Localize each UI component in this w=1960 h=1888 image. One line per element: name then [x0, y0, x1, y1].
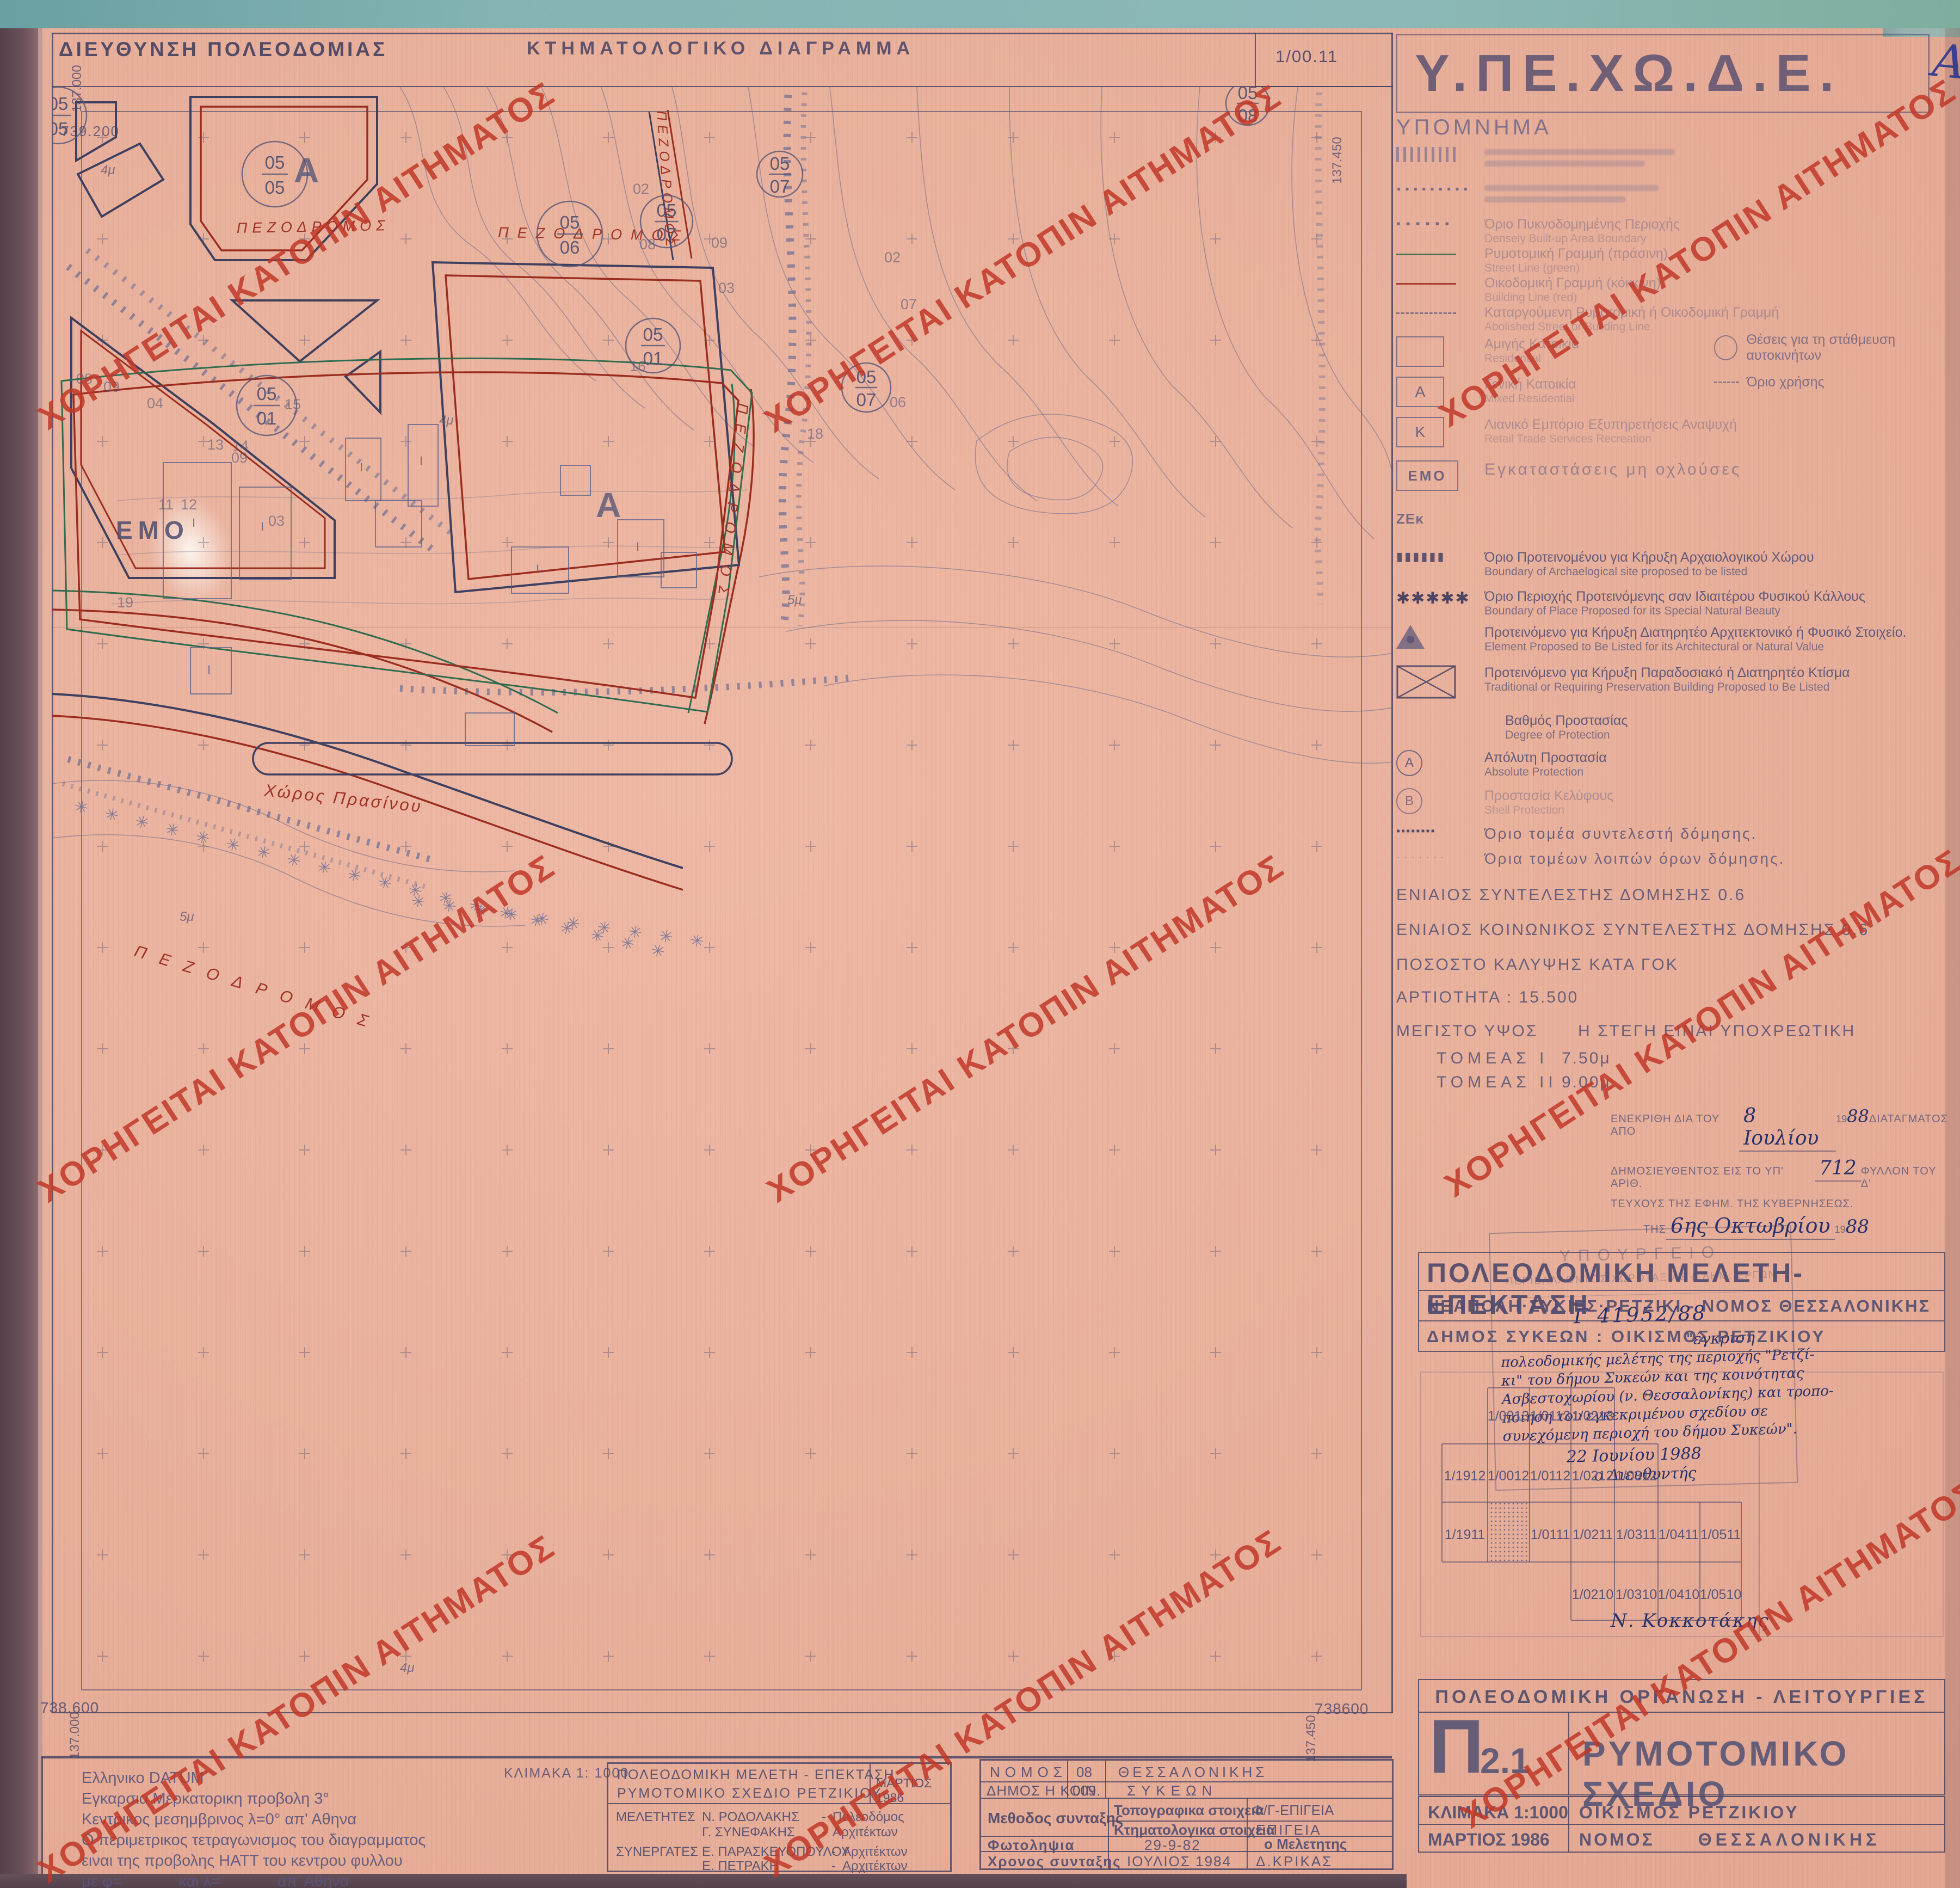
sector1-label: ΤΟΜΕΑΣ Ι: [1437, 1049, 1548, 1068]
svg-text:4μ: 4μ: [101, 163, 115, 177]
triangle-dot-symbol: [1396, 625, 1478, 649]
approval-year-hw: 88: [1847, 1106, 1869, 1127]
map-header-center-title: ΚΤΗΜΑΤΟΛΟΓΙΚΟ ΔΙΑΓΡΑΜΜΑ: [527, 38, 915, 59]
legend-item-protection-degree: Βαθμός ΠροστασίαςDegree of Protection: [1396, 713, 1946, 742]
svg-text:I: I: [536, 562, 539, 576]
meletitis-label: ο Μελετητης: [1264, 1836, 1347, 1853]
time-value: ΙΟΥΛΙΟΣ 1984: [1127, 1853, 1231, 1870]
svg-text:05: 05: [257, 384, 277, 404]
colon-1: :: [691, 1810, 695, 1825]
sheet-code-letter: Π: [1429, 1708, 1484, 1785]
dimos-value: ΣΥΚΕΩΝ: [1127, 1782, 1217, 1799]
stars-symbol: ✱✱✱✱✱: [1396, 589, 1478, 608]
approval-year2-print: 19: [1835, 1224, 1846, 1235]
empty-rect-symbol: [1396, 336, 1478, 367]
approval-l2-suffix: ΦΥΛΛΟΝ ΤΟΥ Δ': [1861, 1165, 1948, 1190]
current-sheet-cell: [1488, 1502, 1530, 1562]
svg-text:1/0410: 1/0410: [1658, 1587, 1699, 1602]
svg-text:1/0311: 1/0311: [1616, 1527, 1657, 1542]
svg-text:I: I: [420, 454, 423, 468]
study-name-1: Ν. ΡΟΔΟΛΑΚΗΣ: [702, 1810, 799, 1825]
legend-item-traditional-building: Προτεινόμενο για Κήρυξη Παραδοσιακό ή Δι…: [1396, 665, 1946, 702]
regulation-line-4: ΑΡΤΙΟΤΗΤΑ : 15.500: [1396, 988, 1579, 1007]
colon-2: :: [691, 1844, 695, 1860]
sheet-index: 1/0013 1/0113 1/0213 1/1912 1/0012 1/011…: [1420, 1372, 1945, 1638]
svg-text:11: 11: [158, 496, 174, 513]
svg-text:1/1912: 1/1912: [1444, 1468, 1486, 1484]
circle-a-symbol: Α: [1396, 750, 1478, 776]
svg-text:04: 04: [147, 395, 163, 411]
svg-text:13: 13: [207, 436, 224, 453]
study-credit-label-1: ΜΕΛΕΤΗΤΕΣ: [616, 1810, 695, 1825]
regulation-line-2: ΕΝΙΑΙΟΣ ΚΟΙΝΩΝΙΚΟΣ ΣΥΝΤΕΛΕΣΤΗΣ ΔΟΜΗΣΗΣ 0…: [1396, 921, 1869, 939]
datum-line-1: Ελληνικο DATUM: [82, 1768, 426, 1788]
svg-text:1/0510: 1/0510: [1700, 1587, 1741, 1602]
title-date: ΜΑΡΤΙΟΣ 1986: [1428, 1830, 1550, 1850]
svg-text:05: 05: [265, 177, 285, 198]
svg-text:05: 05: [52, 94, 68, 114]
ktima-label: Κτηματολογικα στοιχεια: [1114, 1822, 1275, 1838]
svg-text:01: 01: [257, 408, 277, 428]
regulation-line-1: ΕΝΙΑΙΟΣ ΣΥΝΤΕΛΕΣΤΗΣ ΔΟΜΗΣΗΣ 0.6: [1396, 886, 1746, 905]
approval-year2-hw: 88: [1846, 1216, 1869, 1238]
sector2-label: ΤΟΜΕΑΣ ΙΙ: [1437, 1073, 1557, 1092]
svg-text:5μ: 5μ: [787, 593, 802, 607]
scan-shade-right: [1945, 28, 1960, 1888]
scanner-background-top: [0, 0, 1960, 28]
svg-text:07: 07: [856, 390, 877, 410]
svg-text:1/0111: 1/0111: [1531, 1527, 1570, 1542]
green-line-symbol: [1396, 246, 1478, 255]
admin-table: ΝΟΜΟΣ 08 ΘΕΣΣΑΛΟΝΙΚΗΣ ΔΗΜΟΣ Η ΚΟΙΝ. 009 …: [979, 1759, 1394, 1870]
emo-zone-label: ΕΜΟ: [116, 516, 189, 544]
dash-4: -: [831, 1859, 836, 1874]
topo-value: Φ/Γ-ΕΠΙΓΕΙΑ: [1252, 1802, 1334, 1819]
circle-b-symbol: Β: [1396, 788, 1478, 814]
svg-text:1/0112: 1/0112: [1530, 1468, 1571, 1484]
svg-text:12: 12: [181, 496, 197, 513]
svg-text:09: 09: [711, 235, 728, 251]
svg-text:07: 07: [770, 176, 790, 196]
title-prefecture-value: ΘΕΣΣΑΛΟΝΙΚΗΣ: [1698, 1830, 1881, 1850]
meletitis-name: Δ.ΚΡΙΚΑΣ: [1256, 1853, 1333, 1870]
legend-item-zek: ΖΕκ: [1396, 511, 1946, 527]
dotted-symbol: ·········: [1396, 184, 1478, 195]
project-municipality: ΔΗΜΟΣ ΣΥΚΕΩΝ : ΟΙΚΙΣΜΟΣ ΡΕΤΖΙΚΙΟΥ: [1427, 1327, 1826, 1346]
legend-item-retail: Κ Λιανικό Εμπόριο Εξυπηρετήσεις ΑναψυχήR…: [1396, 417, 1946, 447]
legend-parking-row: Θέσεις για τη στάθμευση αυτοκινήτων: [1714, 332, 1960, 364]
topo-label: Τοπογραφικα στοιχεια: [1114, 1802, 1264, 1819]
rect-x-symbol: [1396, 665, 1478, 702]
svg-text:05: 05: [770, 153, 790, 174]
scanned-plan-sheet: ΔΙΕΥΘΥΝΣΗ ΠΟΛΕΟΔΟΜΙΑΣ ΚΤΗΜΑΤΟΛΟΓΙΚΟ ΔΙΑΓ…: [0, 0, 1960, 1888]
svg-text:5μ: 5μ: [180, 909, 194, 924]
zek-symbol: ΖΕκ: [1396, 511, 1478, 527]
legend-item-illegible-2: ·········: [1396, 184, 1946, 202]
svg-text:1/0411: 1/0411: [1659, 1527, 1699, 1542]
svg-text:1/0212: 1/0212: [1572, 1468, 1613, 1484]
svg-text:1/0310: 1/0310: [1616, 1587, 1657, 1602]
coord-bottom-right-east: 137.450: [1304, 1715, 1319, 1762]
svg-text:4μ: 4μ: [439, 413, 454, 428]
svg-text:05: 05: [643, 324, 663, 345]
dashed-line-symbol: [1396, 305, 1478, 314]
svg-text:1/0213: 1/0213: [1572, 1409, 1613, 1424]
svg-text:1/0012: 1/0012: [1488, 1468, 1529, 1484]
map-grid: [82, 112, 1361, 1690]
legend-item-building-ratio-boundary: ▪▪▪▪▪▪▪▪ Όριο τομέα συντελεστή δόμησης.: [1396, 825, 1946, 842]
svg-text:I: I: [261, 520, 264, 533]
svg-text:06: 06: [890, 394, 906, 410]
time-label: Χρονος συνταξης: [988, 1853, 1121, 1870]
scan-edge-left-highlight: [38, 28, 42, 1888]
legend-item-abolished-line: Καταργούμενη Ρυμοτομική ή Οικοδομική Γρα…: [1396, 305, 1946, 334]
legend-item-absolute-protection: Α Απόλυτη ΠροστασίαAbsolute Protection: [1396, 750, 1946, 779]
approval-l1-suffix: ΔΙΑΤΑΓΜΑΤΟΣ: [1869, 1113, 1948, 1126]
legend-item-other-terms-boundary: · · · · · · · Όρια τομέων λοιπών όρων δό…: [1396, 850, 1946, 868]
sheet-number: 1/00.11: [1275, 47, 1338, 66]
svg-text:07: 07: [657, 224, 677, 244]
svg-text:I: I: [360, 460, 363, 474]
study-role-4: Αρχιτέκτων: [842, 1859, 908, 1874]
title-settlement: ΟΙΚΙΣΜΟΣ ΡΕΤΖΙΚΙΟΥ: [1579, 1803, 1799, 1823]
map-header-left-title: ΔΙΕΥΘΥΝΣΗ ΠΟΛΕΟΔΟΜΙΑΣ: [59, 38, 387, 61]
svg-text:03: 03: [718, 280, 735, 296]
dot-faint-symbol: · · · · · · ·: [1396, 850, 1478, 864]
svg-text:1/1911: 1/1911: [1445, 1527, 1486, 1542]
study-role-3: Αρχιτέκτων: [842, 1844, 908, 1860]
photo-label: Φωτοληψια: [988, 1837, 1075, 1854]
datum-line-6: με φ= και λ= απ' Αθηνα: [82, 1871, 426, 1888]
dimos-code: 009: [1073, 1782, 1096, 1799]
square-dots-symbol: ▪ ▪ ▪ ▪ ▪ ▪: [1396, 217, 1478, 231]
svg-text:1/0013: 1/0013: [1488, 1409, 1529, 1424]
approval-date-hw: 8 Ιουλίου: [1739, 1105, 1836, 1152]
svg-text:I: I: [207, 663, 211, 677]
hatch-bars-symbol: [1396, 147, 1478, 162]
project-block: ΠΟΛΕΟΔΟΜΙΚΗ ΜΕΛΕΤΗ-ΕΠΕΚΤΑΣΗ ΝΕΑΠΟΛΗ·ΣΥΚΙ…: [1418, 1252, 1945, 1352]
legend-use-boundary-row: Όριο χρήσης: [1714, 374, 1825, 390]
max-height-label: ΜΕΓΙΣΤΟ ΥΨΟΣ: [1396, 1022, 1538, 1041]
map-frame-top: [52, 33, 1393, 34]
legend-use-boundary-label: Όριο χρήσης: [1747, 374, 1825, 390]
project-subtitle: ΝΕΑΠΟΛΗ·ΣΥΚΙΕΣ·ΡΕΤΖΙΚΙ - ΝΟΜΟΣ ΘΕΣΣΑΛΟΝΙ…: [1427, 1296, 1931, 1316]
legend-item-listed-element: Προτεινόμενο για Κήρυξη Διατηρητέο Αρχιτ…: [1396, 625, 1946, 654]
svg-text:03: 03: [268, 513, 285, 529]
legend-item-archaeological: ▮▮▮▮▮▮ Όριο Προτεινομένου για Κήρυξη Αρχ…: [1396, 550, 1946, 579]
method-label: Μεθοδος συνταξης: [988, 1810, 1123, 1827]
approval-number-hw: 712: [1815, 1157, 1861, 1182]
photo-value: 29-9-82: [1144, 1837, 1201, 1854]
approval-l1-label: ΕΝΕΚΡΙΘΗ ΔΙΑ ΤΟΥ ΑΠΟ: [1611, 1113, 1739, 1138]
svg-text:1/0211: 1/0211: [1573, 1527, 1613, 1542]
svg-text:05: 05: [52, 119, 68, 139]
nomos-code: 08: [1076, 1764, 1092, 1781]
svg-text:14: 14: [232, 438, 249, 454]
title-prefecture-label: ΝΟΜΟΣ: [1579, 1830, 1655, 1850]
zone-a-label-2: Α: [596, 485, 621, 525]
svg-text:I: I: [636, 540, 639, 554]
svg-text:06: 06: [560, 237, 580, 257]
nomos-value: ΘΕΣΣΑΛΟΝΙΚΗΣ: [1118, 1764, 1267, 1781]
legend-parking-label: Θέσεις για τη στάθμευση αυτοκινήτων: [1746, 332, 1960, 364]
datum-line-5: ειναι της προβολης ΗΑΤΤ του κεντρου φυλλ…: [82, 1850, 426, 1871]
svg-text:I: I: [192, 516, 195, 530]
svg-text:1/0312: 1/0312: [1616, 1468, 1657, 1484]
legend-item-natural-beauty: ✱✱✱✱✱ Όριο Περιοχής Προτεινόμενης σαν Ιδ…: [1396, 589, 1946, 618]
study-credit-label-2: ΣΥΝΕΡΓΑΤΕΣ: [616, 1844, 698, 1860]
svg-text:1/0511: 1/0511: [1700, 1527, 1741, 1542]
dot-row-symbol: ▪▪▪▪▪▪▪▪: [1396, 825, 1478, 838]
agency-title: Υ.ΠΕ.ΧΩ.Δ.Ε.: [1415, 44, 1842, 103]
svg-text:05: 05: [265, 152, 285, 173]
study-title-1: ΠΟΛΕΟΔΟΜΙΚΗ ΜΕΛΕΤΗ - ΕΠΕΚΤΑΣΗ: [617, 1767, 895, 1783]
legend-item-dense-area: ▪ ▪ ▪ ▪ ▪ ▪ Όριο Πυκνοδομημένης Περιοχής…: [1396, 217, 1946, 245]
approval-year-print: 19: [1836, 1114, 1847, 1125]
bar-dots-symbol: ▮▮▮▮▮▮: [1396, 550, 1478, 564]
svg-text:1/0113: 1/0113: [1530, 1409, 1571, 1424]
svg-text:02: 02: [884, 249, 901, 266]
svg-text:05: 05: [657, 200, 677, 220]
scan-edge-left: [0, 28, 38, 1888]
approval-block: ΕΝΕΚΡΙΘΗ ΔΙΑ ΤΟΥ ΑΠΟ 8 Ιουλίου 19 88 ΔΙΑ…: [1611, 1105, 1948, 1240]
red-line-symbol: [1396, 275, 1478, 285]
svg-text:05: 05: [560, 212, 580, 232]
svg-text:18: 18: [807, 426, 823, 442]
svg-text:15: 15: [285, 396, 301, 413]
rect-emo-symbol: ΕΜΟ: [1396, 460, 1478, 491]
legend-title: ΥΠΟΜΝΗΜΑ: [1396, 115, 1552, 140]
svg-text:02: 02: [633, 181, 649, 197]
approval-l3: ΤΕΥΧΟΥΣ ΤΗΣ ΕΦΗΜ. ΤΗΣ ΚΥΒΕΡΝΗΣΕΩΣ.: [1611, 1198, 1948, 1210]
map-frame-bottom: [52, 1712, 1393, 1713]
approval-l2-label: ΔΗΜΟΣΙΕΥΘΕΝΤΟΣ ΕΙΣ ΤΟ ΥΠ' ΑΡΙΘ.: [1611, 1165, 1815, 1190]
regulation-line-3: ΠΟΣΟΣΤΟ ΚΑΛΥΨΗΣ ΚΑΤΑ ΓΟΚ: [1396, 956, 1679, 974]
legend-item-shell-protection: Β Προστασία ΚελύφουςShell Protection: [1396, 788, 1946, 817]
svg-text:19: 19: [117, 594, 133, 611]
coord-bottom-left-east: 137.000: [67, 1712, 83, 1759]
use-boundary-dash-icon: [1714, 382, 1739, 383]
parking-circle-icon: [1714, 335, 1737, 360]
svg-text:1/0210: 1/0210: [1572, 1587, 1613, 1602]
nomos-label: ΝΟΜΟΣ: [990, 1764, 1067, 1781]
legend-item-emo: ΕΜΟ Εγκαταστάσεις μη οχλούσες: [1396, 460, 1946, 491]
svg-text:01: 01: [643, 348, 663, 368]
